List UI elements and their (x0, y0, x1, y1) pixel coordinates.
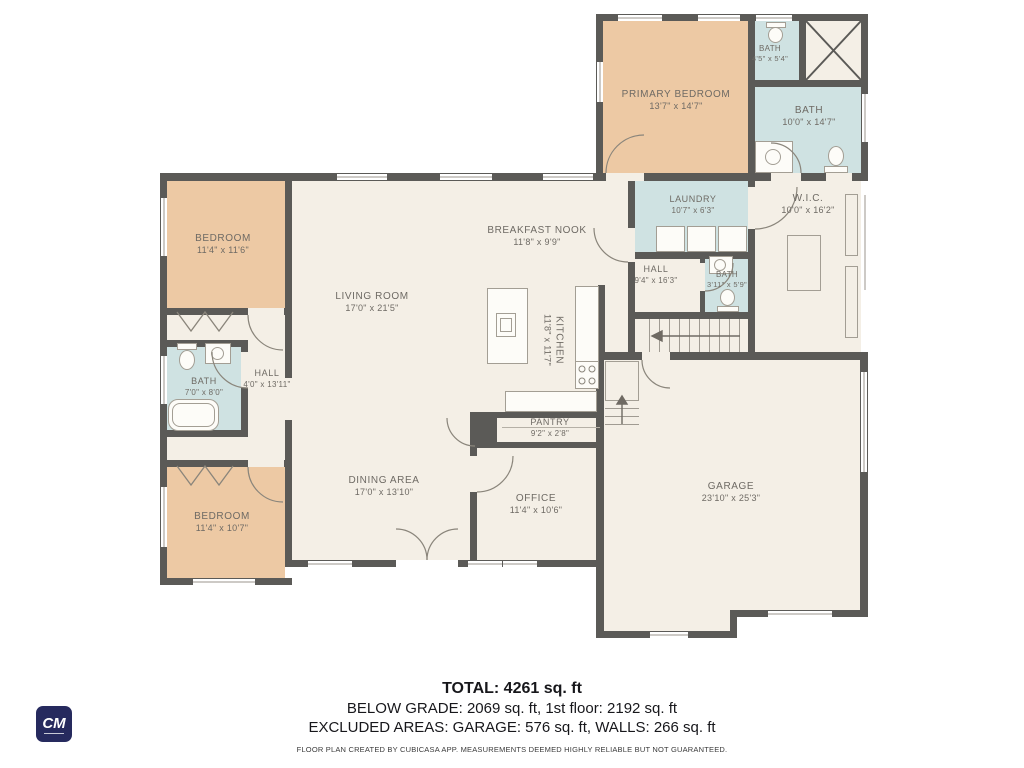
disclaimer-text: FLOOR PLAN CREATED BY CUBICASA APP. MEAS… (0, 745, 1024, 754)
door-gap (771, 173, 801, 181)
window (861, 372, 867, 472)
closet-shelf (845, 266, 858, 338)
window (862, 94, 868, 142)
door-gap (396, 560, 458, 567)
wall (596, 352, 868, 360)
toilet-icon (768, 27, 783, 43)
room-label-primary-bedroom: PRIMARY BEDROOM13'7" x 14'7" (622, 88, 731, 113)
window (618, 15, 662, 21)
door-gap (248, 308, 284, 315)
window (308, 561, 352, 567)
room-label-bath-hall: BATH3'11" x 5'9" (707, 270, 747, 290)
room-fill-closet-x (806, 21, 861, 80)
window (193, 579, 255, 585)
room-label-bedroom-top: BEDROOM11'4" x 11'6" (195, 232, 251, 257)
cm-logo-underline (44, 733, 64, 734)
window (468, 561, 502, 567)
washer-icon (687, 226, 716, 252)
sink-basin-icon (211, 347, 224, 360)
door-gap (628, 228, 635, 262)
room-label-kitchen: KITCHEN11'8" x 11'7" (541, 314, 566, 366)
garage-door (768, 611, 832, 617)
wall (628, 312, 755, 319)
window (161, 487, 167, 547)
kitchen-counter (505, 391, 597, 412)
floor-plan-canvas: PRIMARY BEDROOM13'7" x 14'7" BATH4'5" x … (0, 0, 1024, 768)
window (650, 632, 688, 638)
window (862, 195, 868, 290)
toilet-icon (717, 306, 739, 312)
washer-icon (656, 226, 685, 252)
room-label-breakfast-nook: BREAKFAST NOOK11'8" x 9'9" (487, 224, 586, 249)
room-label-hall-left: HALL4'0" x 13'11" (243, 368, 290, 390)
room-label-office: OFFICE11'4" x 10'6" (510, 492, 563, 517)
room-label-wic: W.I.C.10'0" x 16'2" (781, 192, 834, 217)
bathtub-inner-icon (172, 403, 215, 427)
toilet-icon (828, 146, 844, 166)
toilet-icon (179, 350, 195, 370)
closet-island (787, 235, 821, 291)
room-label-garage: GARAGE23'10" x 25'3" (702, 480, 761, 505)
door-gap (642, 352, 670, 360)
window (440, 174, 492, 180)
window (597, 62, 603, 102)
wall (748, 14, 755, 180)
room-fill-garage-notch (604, 610, 730, 631)
room-fill-nook-corridor (603, 181, 628, 352)
window (337, 174, 387, 180)
room-label-living-room: LIVING ROOM17'0" x 21'5" (335, 290, 408, 315)
window (161, 198, 167, 256)
island-sink-basin (500, 318, 512, 332)
door-gap (700, 263, 705, 291)
door-gap (606, 173, 644, 181)
room-label-dining-area: DINING AREA17'0" x 13'10" (348, 474, 419, 499)
room-label-bath-small-top: BATH4'5" x 5'4" (752, 44, 788, 64)
window (543, 174, 593, 180)
room-label-hall-right: HALL9'4" x 16'3" (634, 264, 677, 286)
room-label-bedroom-bottom: BEDROOM11'4" x 10'7" (194, 510, 250, 535)
door-gap (248, 460, 284, 467)
excluded-areas-text: EXCLUDED AREAS: GARAGE: 576 sq. ft, WALL… (0, 719, 1024, 736)
toilet-icon (177, 343, 197, 350)
door-gap (748, 187, 755, 229)
stairs-main (640, 319, 748, 352)
wall (628, 252, 755, 259)
wall (160, 430, 248, 437)
toilet-icon (720, 289, 735, 306)
wall (470, 442, 603, 448)
window (503, 561, 537, 567)
door-gap (470, 456, 477, 492)
wall (596, 352, 604, 638)
wall (160, 340, 248, 347)
cm-logo: CM (36, 706, 72, 742)
stairs-landing (605, 361, 639, 401)
room-label-pantry: PANTRY9'2" x 2'8" (530, 417, 569, 439)
room-label-laundry: LAUNDRY10'7" x 6'3" (669, 194, 716, 216)
wall (475, 412, 497, 445)
toilet-icon (824, 166, 848, 173)
sink-basin-icon (765, 149, 781, 165)
cm-logo-text: CM (42, 715, 65, 732)
total-area-text: TOTAL: 4261 sq. ft (0, 680, 1024, 698)
stairs-garage (605, 401, 639, 427)
area-summary: TOTAL: 4261 sq. ft BELOW GRADE: 2069 sq.… (0, 680, 1024, 754)
window (698, 15, 740, 21)
window (756, 15, 792, 21)
room-label-bath-primary: BATH10'0" x 14'7" (782, 104, 835, 129)
below-grade-text: BELOW GRADE: 2069 sq. ft, 1st floor: 219… (0, 700, 1024, 717)
door-gap (826, 173, 852, 181)
closet-shelf (845, 194, 858, 256)
dryer-icon (718, 226, 747, 252)
wall (598, 285, 605, 352)
stove-icon (575, 361, 599, 389)
wall (748, 80, 868, 87)
window (161, 356, 167, 404)
wall (799, 14, 806, 87)
room-label-bath-left: BATH7'0" x 8'0" (185, 376, 223, 398)
